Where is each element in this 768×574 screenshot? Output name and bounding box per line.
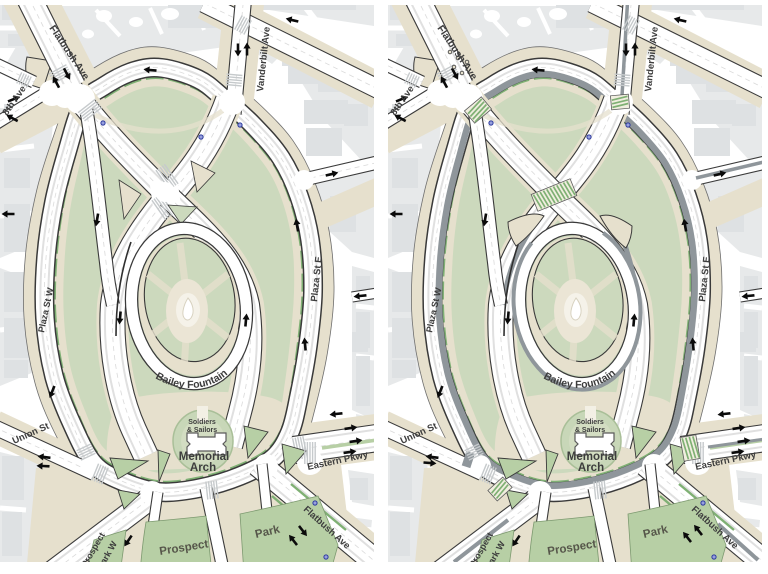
svg-text:Soldiers: Soldiers [576,419,604,426]
svg-text:Arch: Arch [578,462,604,474]
svg-text:Soldiers: Soldiers [188,419,216,426]
svg-text:Arch: Arch [190,462,216,474]
svg-text:& Sailors: & Sailors [187,427,217,434]
svg-text:& Sailors: & Sailors [575,427,605,434]
